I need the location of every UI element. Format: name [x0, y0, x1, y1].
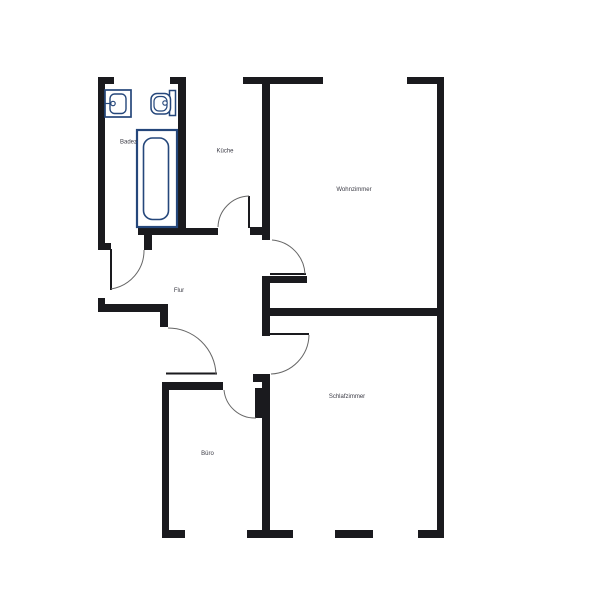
wall-buero-left [162, 382, 169, 538]
wall-center-mid [262, 276, 270, 336]
door-arc-wohnzimmer [272, 240, 305, 274]
wall-buero-top [162, 382, 223, 390]
wall-center-lower [262, 374, 270, 538]
door-leaf-kueche [248, 196, 250, 228]
wall-bath-jamb [144, 233, 152, 250]
floorplan-svg: Badez Küche Wohnzimmer Flur Schlafzimmer… [0, 0, 600, 600]
wall-flur-bottom [98, 304, 168, 312]
wall-wohn-schlaf [262, 308, 444, 316]
floorplan-canvas: Badez Küche Wohnzimmer Flur Schlafzimmer… [0, 0, 600, 600]
room-label-flur: Flur [174, 288, 184, 294]
wall-right [437, 77, 444, 538]
room-label-schlafzimmer: Schlafzimmer [329, 394, 365, 400]
door-arc-buero [224, 390, 256, 418]
door-leaf-entry [166, 373, 217, 375]
room-label-wohnzimmer: Wohnzimmer [336, 187, 371, 193]
room-label-kueche: Küche [216, 149, 234, 155]
door-leaf-badezimmer [110, 249, 112, 290]
room-label-badezimmer: Badez [120, 140, 137, 146]
door-leaf-buero [255, 388, 262, 418]
room-label-buero: Büro [201, 451, 214, 457]
wall-bathdoor-frame [98, 243, 111, 250]
sink-icon [105, 90, 131, 117]
wall-entry-stub [160, 304, 168, 327]
wall-left-upper [98, 77, 105, 249]
wall-center-corner [253, 374, 262, 382]
door-leaf-schlafzimmer [270, 333, 309, 335]
toilet-icon [151, 91, 176, 116]
door-arc-entry [168, 328, 216, 374]
wall-bath-kitchen [178, 77, 186, 235]
wall-bottom-4 [418, 530, 444, 538]
door-arc-badezimmer [111, 250, 144, 289]
bathtub-icon [137, 130, 177, 227]
wall-center-upper [262, 77, 270, 240]
door-arc-kueche [218, 196, 249, 227]
wall-top-3 [243, 77, 323, 84]
fixtures [105, 90, 177, 227]
door-leaf-wohnzimmer [270, 273, 306, 275]
wall-bottom-3 [335, 530, 373, 538]
door-arc-schlafzimmer [271, 335, 309, 374]
